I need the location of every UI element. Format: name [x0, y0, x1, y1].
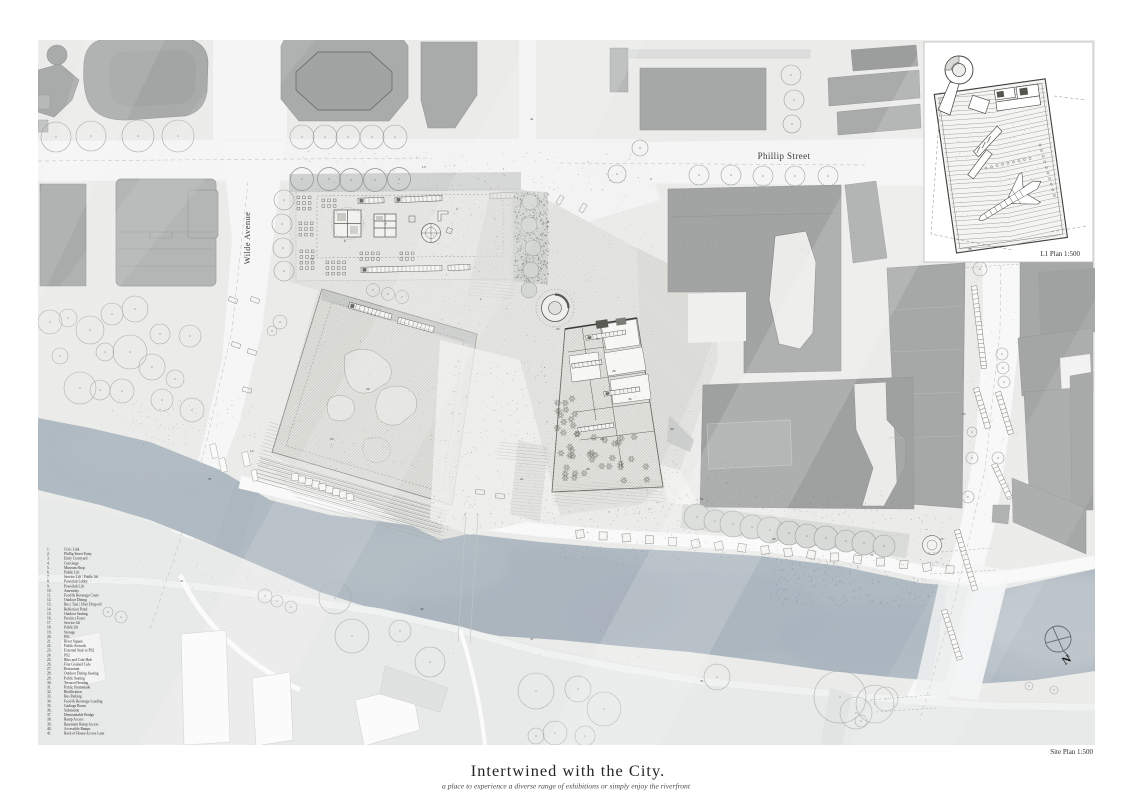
svg-text:Museum Shop: Museum Shop [64, 566, 85, 570]
svg-text:28: 28 [600, 437, 604, 441]
svg-text:24.: 24. [47, 653, 52, 657]
svg-text:20: 20 [366, 387, 370, 391]
svg-text:Phillip Street Entry: Phillip Street Entry [64, 552, 92, 556]
svg-text:30: 30 [670, 427, 674, 431]
svg-text:Biofiltration: Biofiltration [64, 690, 82, 694]
svg-text:11.: 11. [47, 594, 51, 598]
svg-text:25.: 25. [47, 658, 52, 662]
svg-text:Service lift: Service lift [64, 621, 80, 625]
svg-text:31.: 31. [47, 686, 52, 690]
svg-text:21.: 21. [47, 640, 52, 644]
svg-text:20.: 20. [47, 635, 52, 639]
svg-text:26.: 26. [47, 663, 52, 667]
svg-text:Restaurant: Restaurant [64, 667, 79, 671]
svg-text:23.: 23. [47, 649, 52, 653]
svg-text:29.: 29. [47, 676, 52, 680]
svg-text:1.: 1. [47, 548, 50, 552]
svg-text:17.: 17. [47, 621, 52, 625]
svg-text:Civic Link: Civic Link [64, 548, 80, 552]
svg-text:4.: 4. [47, 561, 50, 565]
svg-text:Garbage Room: Garbage Room [64, 704, 86, 708]
svg-text:External Stair to PS2: External Stair to PS2 [64, 649, 94, 653]
svg-text:Precinct Foyer: Precinct Foyer [64, 617, 86, 621]
svg-text:36.: 36. [47, 709, 52, 713]
svg-text:Substation: Substation [64, 709, 79, 713]
svg-text:16.: 16. [47, 617, 52, 621]
svg-text:Bus | Taxi | Uber Drop-off: Bus | Taxi | Uber Drop-off [64, 603, 102, 607]
svg-text:41.: 41. [47, 732, 52, 736]
svg-text:Phillip Street: Phillip Street [758, 151, 811, 161]
svg-text:3.: 3. [47, 557, 50, 561]
svg-text:Public lift: Public lift [64, 626, 78, 630]
svg-text:37.: 37. [47, 713, 52, 717]
svg-text:Basement Ramp Access: Basement Ramp Access [64, 722, 99, 726]
svg-text:31: 31 [700, 497, 704, 501]
svg-text:19.: 19. [47, 630, 52, 634]
svg-text:Public Promenade: Public Promenade [64, 686, 91, 690]
svg-text:Terraced Seating: Terraced Seating [64, 681, 88, 685]
svg-text:1: 1 [480, 297, 482, 301]
svg-text:31: 31 [180, 579, 184, 583]
svg-text:34.: 34. [47, 699, 52, 703]
svg-text:26: 26 [612, 369, 616, 373]
svg-text:River Square: River Square [64, 640, 83, 644]
svg-text:40.: 40. [47, 727, 52, 731]
svg-text:5.: 5. [47, 566, 50, 570]
svg-text:31: 31 [700, 679, 704, 683]
svg-text:29: 29 [772, 537, 776, 541]
svg-text:a place to experience a divers: a place to experience a diverse range of… [442, 782, 691, 791]
svg-text:25: 25 [940, 537, 944, 541]
svg-text:Outdoor Dining Seating: Outdoor Dining Seating [64, 672, 99, 676]
svg-text:Storage: Storage [64, 630, 75, 634]
svg-text:Powerlab Lift: Powerlab Lift [64, 584, 84, 588]
svg-text:2.: 2. [47, 552, 50, 556]
svg-text:6.: 6. [47, 571, 50, 575]
svg-text:31: 31 [870, 553, 874, 557]
svg-text:12: 12 [310, 257, 314, 261]
svg-text:7: 7 [385, 222, 387, 226]
svg-text:27.: 27. [47, 667, 52, 671]
svg-text:27: 27 [596, 337, 600, 341]
svg-text:Public Seating: Public Seating [64, 676, 85, 680]
svg-text:Service Lift / Public lift: Service Lift / Public lift [64, 575, 98, 579]
svg-text:18.: 18. [47, 626, 52, 630]
svg-text:Bus Parking: Bus Parking [64, 695, 82, 699]
svg-text:Food & Beverage Court: Food & Beverage Court [64, 594, 99, 598]
svg-text:13: 13 [422, 165, 426, 169]
svg-text:23: 23 [330, 437, 334, 441]
svg-text:Public Artwork: Public Artwork [64, 644, 86, 648]
svg-text:32.: 32. [47, 690, 52, 694]
svg-text:PS2: PS2 [64, 653, 70, 657]
svg-text:Site Plan 1:500: Site Plan 1:500 [1050, 748, 1093, 756]
svg-text:12.: 12. [47, 598, 52, 602]
svg-text:Intertwined with the City.: Intertwined with the City. [471, 761, 665, 780]
svg-text:Ramp Access: Ramp Access [64, 718, 84, 722]
svg-text:33.: 33. [47, 695, 52, 699]
svg-text:Outdoor Seating: Outdoor Seating [64, 612, 88, 616]
svg-text:6: 6 [344, 239, 346, 243]
svg-text:PS1: PS1 [64, 635, 70, 639]
svg-text:14.: 14. [47, 607, 52, 611]
svg-text:33: 33 [962, 412, 966, 416]
svg-text:Entry Courtyard: Entry Courtyard [64, 557, 88, 561]
svg-text:28.: 28. [47, 672, 52, 676]
svg-text:Demountable Bridge: Demountable Bridge [64, 713, 94, 717]
svg-text:10.: 10. [47, 589, 52, 593]
svg-text:35.: 35. [47, 704, 52, 708]
svg-text:21: 21 [520, 477, 524, 481]
svg-text:38: 38 [968, 247, 972, 251]
svg-text:30.: 30. [47, 681, 52, 685]
svg-text:Food & Beverage Loading: Food & Beverage Loading [64, 699, 103, 703]
svg-text:37: 37 [208, 477, 212, 481]
svg-text:Accessible Ramps: Accessible Ramps [64, 727, 91, 731]
svg-text:Wilde Avenue: Wilde Avenue [242, 212, 252, 265]
svg-text:L1 Plan 1:500: L1 Plan 1:500 [1040, 250, 1080, 258]
svg-text:Public Lift: Public Lift [64, 571, 79, 575]
svg-text:39.: 39. [47, 722, 52, 726]
svg-text:Bike and Cafe Hub: Bike and Cafe Hub [64, 658, 92, 662]
svg-text:13.: 13. [47, 603, 52, 607]
svg-text:41: 41 [530, 117, 534, 121]
svg-text:Powerlab Lobby: Powerlab Lobby [64, 580, 88, 584]
svg-text:Outdoor Dining: Outdoor Dining [64, 598, 87, 602]
svg-text:22.: 22. [47, 644, 52, 648]
svg-text:Concierge: Concierge [64, 561, 79, 565]
svg-text:28: 28 [586, 467, 590, 471]
svg-text:7.: 7. [47, 575, 50, 579]
svg-text:8.: 8. [47, 580, 50, 584]
svg-text:Fine Grained Cafe: Fine Grained Cafe [64, 663, 91, 667]
svg-text:Amenities: Amenities [64, 589, 79, 593]
svg-text:38.: 38. [47, 718, 52, 722]
svg-text:23: 23 [556, 327, 560, 331]
svg-text:13: 13 [250, 449, 254, 453]
svg-text:Reflection Pond: Reflection Pond [64, 607, 87, 611]
svg-text:Back of House Access Lane: Back of House Access Lane [64, 732, 105, 736]
svg-text:15.: 15. [47, 612, 52, 616]
svg-text:2: 2 [456, 207, 458, 211]
svg-text:32: 32 [420, 607, 424, 611]
svg-text:2: 2 [650, 177, 652, 181]
svg-text:36: 36 [628, 397, 632, 401]
svg-text:9.: 9. [47, 584, 50, 588]
svg-text:37: 37 [530, 637, 534, 641]
